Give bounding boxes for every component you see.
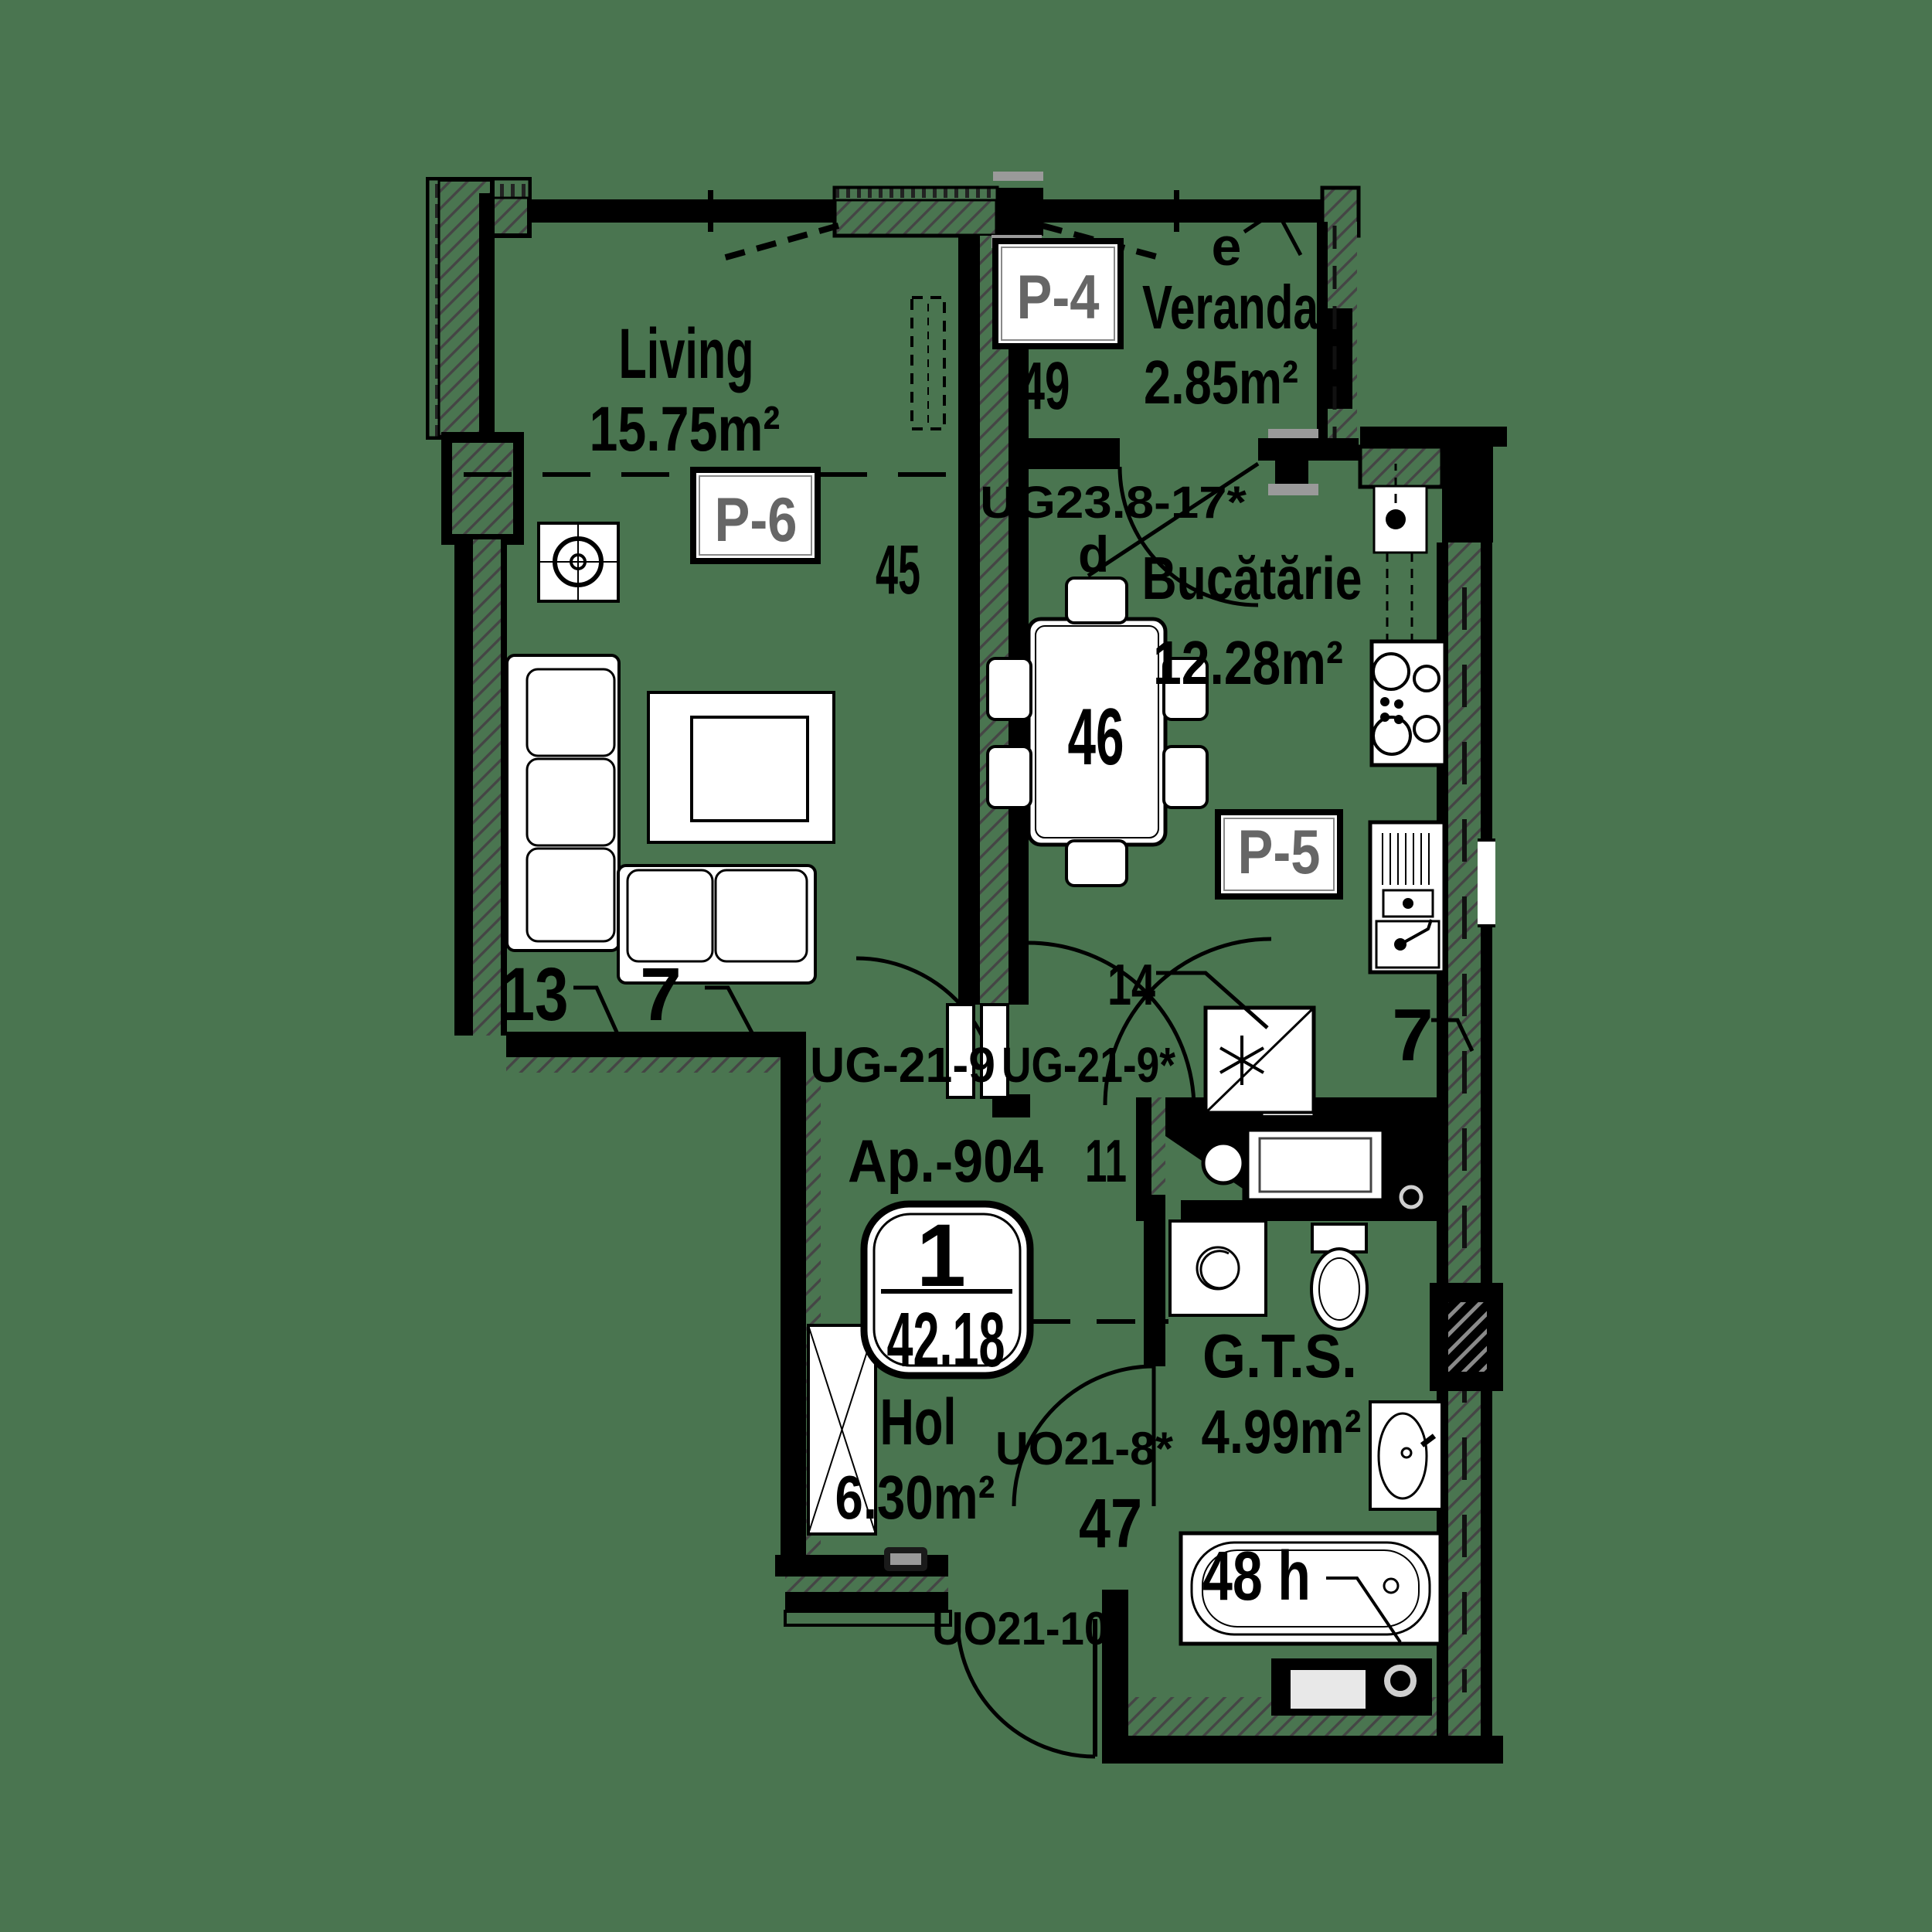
svg-text:42.18: 42.18 <box>887 1297 1005 1383</box>
svg-text:P-6: P-6 <box>715 485 798 555</box>
svg-text:UO21-8*: UO21-8* <box>995 1423 1174 1475</box>
svg-text:Ap.-904: Ap.-904 <box>848 1127 1043 1195</box>
svg-text:UG23.8-17*: UG23.8-17* <box>980 478 1247 528</box>
svg-text:Veranda: Veranda <box>1142 273 1318 342</box>
svg-text:UG-21-9*: UG-21-9* <box>1002 1037 1175 1093</box>
svg-text:7: 7 <box>640 952 682 1036</box>
svg-text:14: 14 <box>1107 952 1155 1017</box>
svg-text:UO21-10*: UO21-10* <box>932 1603 1126 1655</box>
svg-text:UG-21-9: UG-21-9 <box>810 1037 995 1093</box>
svg-text:6.30m²: 6.30m² <box>835 1463 995 1532</box>
svg-text:11: 11 <box>1085 1127 1127 1195</box>
svg-text:49: 49 <box>1020 349 1070 423</box>
svg-text:47: 47 <box>1079 1485 1142 1563</box>
svg-text:Hol: Hol <box>880 1386 957 1458</box>
svg-text:2.85m²: 2.85m² <box>1144 348 1298 417</box>
svg-text:12.28m²: 12.28m² <box>1153 628 1343 697</box>
svg-text:d: d <box>1078 526 1109 583</box>
svg-text:e: e <box>1212 216 1242 277</box>
svg-text:P-4: P-4 <box>1017 263 1100 332</box>
svg-text:45: 45 <box>876 532 920 609</box>
svg-text:7: 7 <box>1392 994 1433 1077</box>
svg-text:46: 46 <box>1068 692 1124 782</box>
svg-text:Bucătărie: Bucătărie <box>1142 544 1362 612</box>
svg-text:48 h: 48 h <box>1202 1538 1311 1615</box>
svg-text:13: 13 <box>502 952 569 1036</box>
svg-text:15.75m²: 15.75m² <box>590 394 781 464</box>
svg-text:4.99m²: 4.99m² <box>1202 1397 1362 1466</box>
svg-text:Living: Living <box>619 315 754 393</box>
svg-text:G.T.S.: G.T.S. <box>1202 1321 1357 1390</box>
svg-text:1: 1 <box>917 1206 966 1305</box>
svg-text:P-5: P-5 <box>1238 818 1321 887</box>
